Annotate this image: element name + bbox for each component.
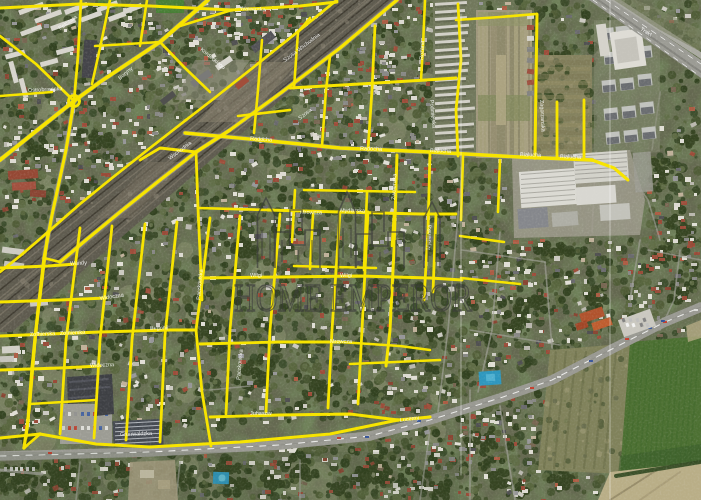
svg-text:Bialucha: Bialucha (560, 153, 582, 160)
svg-text:Grunwaldzka: Grunwaldzka (120, 430, 153, 437)
svg-text:Begonii: Begonii (150, 324, 169, 331)
svg-text:Juhasow: Juhasow (250, 410, 272, 416)
svg-text:Zolnierska: Zolnierska (30, 330, 57, 337)
svg-text:Radocha: Radocha (360, 145, 383, 152)
svg-text:Mrowcza: Mrowcza (330, 338, 353, 344)
svg-text:HOME EMPEROR: HOME EMPEROR (234, 275, 472, 320)
svg-text:Bialucha: Bialucha (520, 151, 542, 158)
svg-text:Wandy: Wandy (70, 259, 87, 266)
svg-text:Mrowcza: Mrowcza (300, 209, 323, 215)
svg-text:Rozana: Rozana (418, 40, 425, 60)
svg-text:Widoczna: Widoczna (90, 361, 115, 368)
svg-text:Bialucha: Bialucha (430, 147, 452, 154)
